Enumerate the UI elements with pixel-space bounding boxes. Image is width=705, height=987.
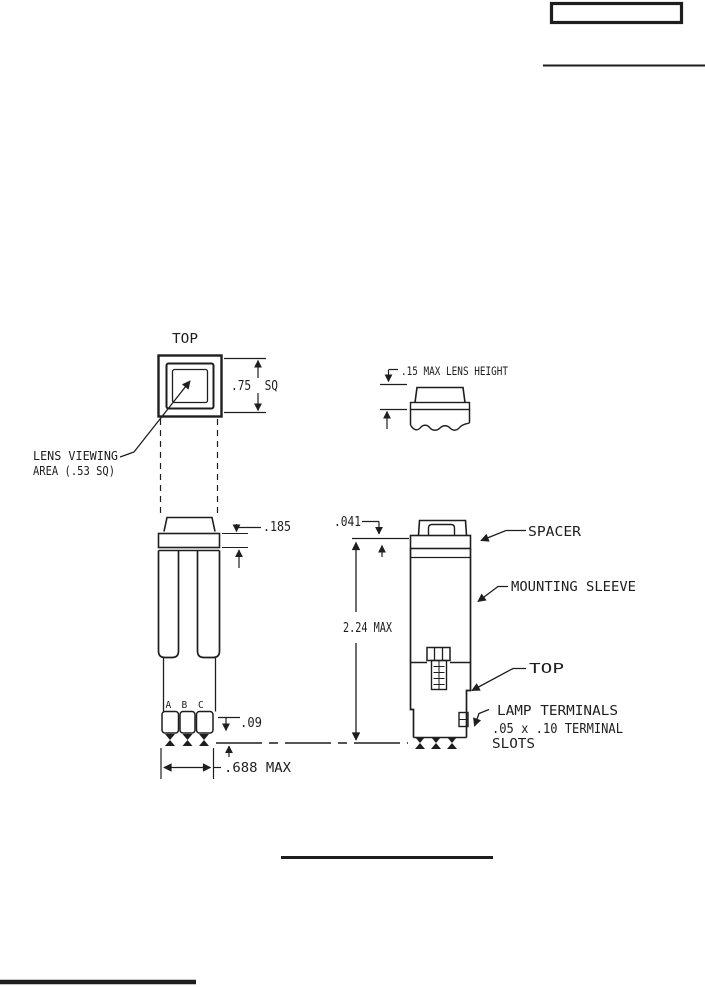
mounting-sleeve-right-edge	[467, 549, 471, 738]
spacer-band	[411, 536, 471, 549]
dim-688-max	[161, 748, 221, 779]
lamp-terminals-label-line1: LAMP TERMINALS	[497, 704, 618, 719]
top-label: TOP	[529, 662, 564, 677]
lamp-terminal-pins	[415, 737, 457, 749]
right-view-body	[411, 521, 471, 750]
left-view: TOP LENS VIEWING AREA (.53 SQ) .75 SQ	[33, 332, 291, 779]
dim-185-label: .185	[263, 520, 291, 535]
spacer-leader-arrow	[481, 531, 526, 541]
dim-041-label: .041	[334, 515, 361, 530]
lens-viewing-label-line1: LENS VIEWING	[33, 449, 118, 463]
dim-09	[218, 718, 240, 758]
lens-height-detail: .15 MAX LENS HEIGHT	[380, 364, 508, 430]
terminal-label-c: C	[198, 700, 204, 711]
lamp-terminals-leader-arrow	[475, 710, 490, 727]
mounting-sleeve-leader-arrow	[478, 587, 508, 602]
spacer-label: SPACER	[528, 525, 581, 540]
mounting-sleeve-left-edge	[411, 549, 414, 738]
dim-224-max-label: 2.24 MAX	[343, 621, 392, 636]
break-line	[411, 423, 470, 430]
terminal-label-b: B	[182, 700, 188, 711]
terminal-label-a: A	[166, 700, 172, 711]
right-view: .041 2.24 MAX	[334, 515, 636, 752]
header-box	[552, 4, 682, 23]
left-view-title: TOP	[172, 332, 198, 347]
lamp-terminals-label-line3: SLOTS	[492, 737, 535, 752]
lens-square	[159, 356, 222, 417]
lamp-base-connector	[427, 648, 450, 690]
terminal-blocks	[162, 712, 213, 734]
dim-09-label: .09	[240, 716, 262, 731]
figure-drawing: TOP LENS VIEWING AREA (.53 SQ) .75 SQ	[0, 0, 705, 987]
dim-75-sq-label: .75 SQ	[231, 379, 278, 394]
dim-688-max-label: .688 MAX	[224, 761, 291, 776]
manual-page: TOP LENS VIEWING AREA (.53 SQ) .75 SQ	[0, 0, 705, 987]
top-leader-arrow	[472, 669, 526, 691]
lens-viewing-label-line2: AREA (.53 SQ)	[33, 464, 115, 478]
lamp-terminals-label-line2: .05 x .10 TERMINAL	[492, 722, 623, 737]
lens-viewing-leader-arrow	[120, 381, 190, 457]
dim-15-max-label: .15 MAX LENS HEIGHT	[401, 364, 508, 378]
lens-cross-section	[411, 388, 470, 431]
dim-185	[222, 524, 261, 568]
lamp-terminal-pins	[165, 734, 209, 746]
mounting-sleeve-label: MOUNTING SLEEVE	[511, 580, 636, 595]
left-view-body	[159, 518, 220, 712]
